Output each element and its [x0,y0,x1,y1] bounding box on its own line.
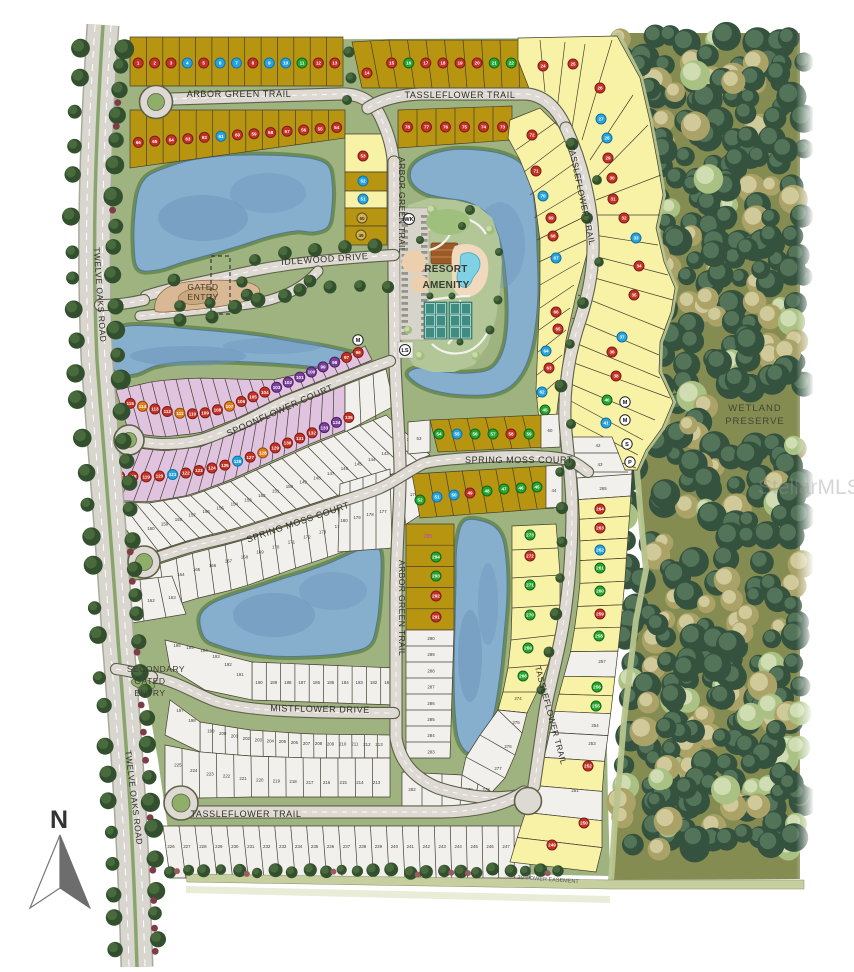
svg-text:20: 20 [475,61,481,66]
svg-text:224: 224 [190,768,198,773]
svg-text:66: 66 [136,140,142,145]
svg-text:19: 19 [457,61,463,66]
svg-text:192: 192 [224,662,232,667]
svg-text:119: 119 [142,475,150,480]
svg-text:287: 287 [427,685,435,690]
svg-text:50: 50 [451,493,457,498]
svg-text:238: 238 [359,844,367,849]
svg-text:277: 277 [494,766,502,771]
svg-text:49: 49 [467,491,473,496]
svg-text:239: 239 [375,844,383,849]
svg-text:188: 188 [284,680,292,685]
svg-text:62: 62 [539,390,545,395]
svg-text:252: 252 [584,764,592,769]
svg-text:68: 68 [550,234,556,239]
svg-text:276: 276 [504,744,512,749]
svg-text:131: 131 [296,436,304,441]
svg-text:12: 12 [316,61,322,66]
svg-text:SECONDARY: SECONDARY [127,664,185,674]
svg-text:178: 178 [366,512,374,517]
svg-text:TASSLEFLOWER TRAIL: TASSLEFLOWER TRAIL [405,90,516,100]
svg-text:145: 145 [354,461,362,466]
svg-text:75: 75 [462,125,468,130]
svg-text:201: 201 [231,734,239,739]
svg-text:63: 63 [546,366,552,371]
svg-text:200: 200 [219,731,227,736]
svg-text:M: M [623,418,628,424]
svg-text:56: 56 [472,432,478,437]
svg-text:135: 135 [345,415,353,420]
svg-text:219: 219 [273,778,281,783]
svg-text:WETLAND: WETLAND [728,403,781,414]
svg-text:15: 15 [389,61,395,66]
svg-text:P: P [628,460,632,466]
svg-text:110: 110 [189,411,197,416]
svg-text:243: 243 [439,844,447,849]
svg-text:246: 246 [486,844,494,849]
svg-text:187: 187 [298,680,306,685]
svg-text:218: 218 [289,779,297,784]
svg-text:47: 47 [501,487,507,492]
svg-text:127: 127 [246,455,254,460]
svg-text:58: 58 [508,432,514,437]
svg-text:124: 124 [208,466,216,471]
svg-text:227: 227 [183,844,191,849]
svg-text:30: 30 [609,176,615,181]
svg-text:18: 18 [440,61,446,66]
svg-text:241: 241 [407,844,415,849]
svg-text:123: 123 [195,468,203,473]
svg-text:64: 64 [169,138,175,143]
svg-text:62: 62 [202,135,208,140]
svg-text:7: 7 [235,61,238,66]
svg-text:GATED: GATED [134,676,165,686]
svg-text:114: 114 [139,404,147,409]
svg-text:284: 284 [427,733,435,738]
svg-text:ENTRY: ENTRY [187,292,218,302]
svg-text:44: 44 [552,488,557,493]
svg-text:9: 9 [268,61,271,66]
svg-text:60: 60 [548,428,553,433]
svg-text:3: 3 [170,61,173,66]
svg-text:291: 291 [432,615,440,620]
svg-text:217: 217 [306,780,314,785]
svg-text:274: 274 [514,696,522,701]
svg-text:51: 51 [360,197,366,202]
svg-text:282: 282 [408,787,416,792]
svg-text:29: 29 [605,156,611,161]
svg-text:179: 179 [353,515,361,520]
svg-text:107: 107 [226,404,234,409]
svg-text:237: 237 [343,844,351,849]
svg-text:ARBOR GREEN TRAIL: ARBOR GREEN TRAIL [187,89,292,99]
svg-text:253: 253 [588,741,596,746]
svg-text:198: 198 [188,718,196,723]
svg-text:182: 182 [370,680,378,685]
svg-text:S: S [625,442,629,448]
svg-text:70: 70 [540,194,546,199]
svg-text:132: 132 [308,431,316,436]
svg-text:38: 38 [613,374,619,379]
svg-text:222: 222 [223,774,231,779]
svg-text:27: 27 [598,117,604,122]
svg-text:264: 264 [596,507,604,512]
svg-text:186: 186 [313,680,321,685]
svg-text:172: 172 [303,535,311,540]
svg-text:159: 159 [161,521,169,526]
svg-text:286: 286 [427,701,435,706]
svg-text:105: 105 [249,395,257,400]
svg-text:228: 228 [199,844,207,849]
svg-text:11: 11 [300,61,305,66]
svg-text:41: 41 [603,421,609,426]
svg-text:126: 126 [234,459,242,464]
svg-text:129: 129 [271,446,279,451]
svg-text:177: 177 [379,509,387,514]
svg-text:55: 55 [318,126,324,131]
svg-text:171: 171 [288,540,296,545]
svg-text:242: 242 [423,844,431,849]
svg-text:152: 152 [258,493,266,498]
svg-text:60: 60 [235,133,241,138]
svg-text:165: 165 [193,567,201,572]
svg-text:130: 130 [284,441,292,446]
svg-text:223: 223 [206,771,214,776]
svg-text:63: 63 [185,136,191,141]
svg-text:45: 45 [542,408,548,413]
svg-text:66: 66 [553,310,559,315]
svg-text:147: 147 [327,471,335,476]
svg-text:57: 57 [285,129,291,134]
svg-text:205: 205 [279,739,287,744]
svg-text:160: 160 [147,526,155,531]
svg-text:195: 195 [186,645,194,650]
svg-text:268: 268 [519,674,527,679]
svg-text:290: 290 [427,636,435,641]
svg-text:146: 146 [341,466,349,471]
svg-text:247: 247 [502,844,510,849]
svg-text:120: 120 [156,474,164,479]
svg-text:134: 134 [333,420,341,425]
svg-text:250: 250 [580,821,588,826]
svg-text:173: 173 [319,529,327,534]
svg-text:106: 106 [237,399,245,404]
svg-text:213: 213 [375,742,383,747]
svg-text:ARBOR GREEN TRAIL: ARBOR GREEN TRAIL [397,157,407,253]
svg-text:99: 99 [320,365,326,370]
svg-text:SPRING MOSS COURT: SPRING MOSS COURT [465,455,573,465]
svg-text:52: 52 [417,498,423,503]
svg-text:158: 158 [175,517,183,522]
svg-text:263: 263 [596,526,604,531]
svg-text:RESORT: RESORT [424,264,467,275]
svg-text:154: 154 [231,502,239,507]
svg-text:133: 133 [320,425,328,430]
svg-text:230: 230 [231,844,239,849]
svg-text:34: 34 [636,264,642,269]
svg-text:31: 31 [610,197,616,202]
svg-text:35: 35 [631,293,637,298]
svg-text:183: 183 [356,680,364,685]
svg-text:4: 4 [186,61,189,66]
svg-text:TASSLEFLOWER TRAIL: TASSLEFLOWER TRAIL [191,809,302,819]
svg-text:260: 260 [596,589,604,594]
svg-text:144: 144 [368,457,376,462]
svg-text:148: 148 [313,475,321,480]
svg-text:210: 210 [339,741,347,746]
svg-text:22: 22 [509,61,515,66]
svg-text:51: 51 [434,495,440,500]
svg-text:42: 42 [596,443,601,448]
svg-text:221: 221 [239,776,247,781]
svg-text:143: 143 [381,451,389,456]
svg-text:204: 204 [267,738,275,743]
svg-text:26: 26 [597,86,603,91]
svg-text:209: 209 [327,741,335,746]
svg-text:232: 232 [263,844,271,849]
svg-text:54: 54 [436,432,442,437]
svg-text:5: 5 [202,61,205,66]
svg-text:236: 236 [327,844,335,849]
svg-text:273: 273 [526,533,534,538]
svg-text:272: 272 [526,554,534,559]
svg-text:196: 196 [173,643,181,648]
svg-text:212: 212 [363,742,371,747]
svg-text:294: 294 [432,555,440,560]
svg-text:249: 249 [548,843,556,848]
svg-text:65: 65 [555,327,561,332]
svg-text:220: 220 [256,778,264,783]
svg-text:97: 97 [344,355,350,360]
svg-text:10: 10 [283,61,289,66]
svg-text:64: 64 [543,349,549,354]
svg-text:AMENITY: AMENITY [422,280,469,291]
svg-text:255: 255 [592,704,600,709]
svg-text:36: 36 [609,350,615,355]
svg-text:N: N [50,806,68,834]
svg-text:168: 168 [241,555,249,560]
svg-text:14: 14 [364,71,370,76]
svg-text:16: 16 [406,61,412,66]
svg-text:211: 211 [351,742,359,747]
svg-text:49: 49 [358,233,364,238]
svg-text:234: 234 [295,844,303,849]
svg-text:203: 203 [255,738,263,743]
svg-text:59: 59 [526,432,532,437]
svg-text:112: 112 [164,409,172,414]
svg-text:256: 256 [593,685,601,690]
svg-text:76: 76 [443,125,449,130]
svg-text:189: 189 [270,680,278,685]
svg-text:PRESERVE: PRESERVE [725,416,785,427]
svg-text:193: 193 [212,654,220,659]
svg-text:104: 104 [261,390,269,395]
svg-text:245: 245 [471,844,479,849]
svg-text:151: 151 [272,489,280,494]
svg-text:261: 261 [596,566,604,571]
svg-text:288: 288 [427,668,435,673]
svg-text:72: 72 [529,133,535,138]
svg-text:100: 100 [308,370,316,375]
svg-text:191: 191 [236,672,244,677]
svg-text:270: 270 [526,613,534,618]
svg-text:108: 108 [214,408,222,413]
svg-text:162: 162 [147,598,155,603]
svg-text:197: 197 [176,708,184,713]
svg-text:153: 153 [244,498,252,503]
svg-text:37: 37 [619,335,625,340]
svg-text:199: 199 [207,728,215,733]
svg-text:40: 40 [604,398,610,403]
svg-text:257: 257 [598,659,606,664]
svg-text:GATED: GATED [187,282,218,292]
svg-text:58: 58 [268,130,274,135]
svg-text:295: 295 [424,534,433,540]
svg-text:ENTRY: ENTRY [134,688,165,698]
svg-text:17: 17 [423,61,429,66]
svg-text:24: 24 [540,64,546,69]
svg-text:155: 155 [217,505,225,510]
svg-text:271: 271 [526,583,534,588]
svg-text:184: 184 [341,680,349,685]
svg-text:57: 57 [490,432,496,437]
svg-text:169: 169 [256,550,264,555]
svg-text:283: 283 [427,749,435,754]
svg-text:65: 65 [152,139,158,144]
svg-text:71: 71 [533,169,539,174]
svg-text:2: 2 [153,61,156,66]
svg-text:269: 269 [524,646,532,651]
svg-text:215: 215 [340,780,348,785]
svg-text:235: 235 [311,844,319,849]
svg-text:254: 254 [591,723,599,728]
svg-text:96: 96 [356,350,362,355]
svg-text:293: 293 [432,574,440,579]
svg-text:213: 213 [373,780,381,785]
svg-text:M: M [356,338,361,344]
svg-text:240: 240 [391,844,399,849]
svg-text:185: 185 [327,680,335,685]
svg-text:180: 180 [340,518,348,523]
svg-text:54: 54 [334,125,340,130]
svg-text:74: 74 [481,125,487,130]
svg-text:59: 59 [251,131,257,136]
svg-text:167: 167 [225,559,233,564]
svg-text:226: 226 [167,844,175,849]
svg-text:122: 122 [182,471,190,476]
svg-text:1: 1 [137,61,140,66]
svg-text:25: 25 [570,62,576,67]
svg-text:163: 163 [168,595,176,600]
svg-text:156: 156 [203,509,211,514]
svg-text:28: 28 [604,136,610,141]
svg-text:125: 125 [221,463,229,468]
svg-text:208: 208 [315,741,323,746]
svg-text:78: 78 [405,125,411,130]
svg-text:289: 289 [427,652,435,657]
svg-text:216: 216 [323,780,331,785]
svg-text:103: 103 [273,385,281,390]
svg-text:53: 53 [360,154,366,159]
svg-text:166: 166 [209,563,217,568]
svg-text:77: 77 [424,125,430,130]
svg-text:33: 33 [633,236,639,241]
svg-text:292: 292 [432,594,440,599]
svg-text:102: 102 [284,380,292,385]
svg-text:262: 262 [596,548,604,553]
svg-text:73: 73 [500,125,506,130]
svg-text:55: 55 [454,432,460,437]
svg-text:52: 52 [360,179,366,184]
svg-text:56: 56 [301,128,307,133]
svg-text:113: 113 [151,407,159,412]
svg-text:207: 207 [303,741,311,746]
svg-text:61: 61 [218,134,224,139]
svg-text:244: 244 [455,844,463,849]
svg-text:21: 21 [492,61,498,66]
svg-text:StellarMLS: StellarMLS [758,476,854,499]
svg-text:225: 225 [174,763,182,768]
svg-text:164: 164 [177,572,185,577]
svg-text:43: 43 [598,462,603,467]
svg-text:48: 48 [484,489,490,494]
svg-text:13: 13 [332,61,338,66]
svg-text:50: 50 [359,216,365,221]
svg-text:157: 157 [189,512,197,517]
svg-text:206: 206 [291,740,299,745]
svg-text:8: 8 [252,61,255,66]
svg-text:275: 275 [512,720,520,725]
svg-text:233: 233 [279,844,287,849]
svg-text:ARBOR GREEN TRAIL: ARBOR GREEN TRAIL [397,560,407,656]
svg-text:202: 202 [243,736,251,741]
svg-text:69: 69 [548,216,554,221]
svg-text:128: 128 [259,451,267,456]
svg-text:170: 170 [272,545,280,550]
svg-text:231: 231 [247,844,255,849]
svg-text:6: 6 [219,61,222,66]
svg-text:111: 111 [176,411,184,416]
svg-text:45: 45 [534,485,540,490]
svg-text:251: 251 [571,788,579,793]
svg-text:259: 259 [596,612,604,617]
svg-text:194: 194 [200,648,208,653]
svg-text:265: 265 [599,486,607,491]
svg-text:150: 150 [286,484,294,489]
svg-text:121: 121 [169,472,177,477]
svg-text:53: 53 [417,436,422,441]
svg-text:258: 258 [595,634,603,639]
svg-text:190: 190 [255,680,263,685]
svg-text:149: 149 [300,480,308,485]
svg-text:98: 98 [332,360,338,365]
svg-text:67: 67 [553,256,559,261]
svg-text:M: M [623,400,628,406]
svg-text:32: 32 [621,216,627,221]
svg-text:229: 229 [215,844,223,849]
svg-text:101: 101 [296,375,304,380]
svg-text:MISTFLOWER DRIVE: MISTFLOWER DRIVE [270,703,370,715]
svg-text:46: 46 [518,486,524,491]
svg-text:109: 109 [201,411,209,416]
svg-text:214: 214 [356,780,364,785]
svg-text:285: 285 [427,717,435,722]
svg-text:LS: LS [401,348,408,354]
